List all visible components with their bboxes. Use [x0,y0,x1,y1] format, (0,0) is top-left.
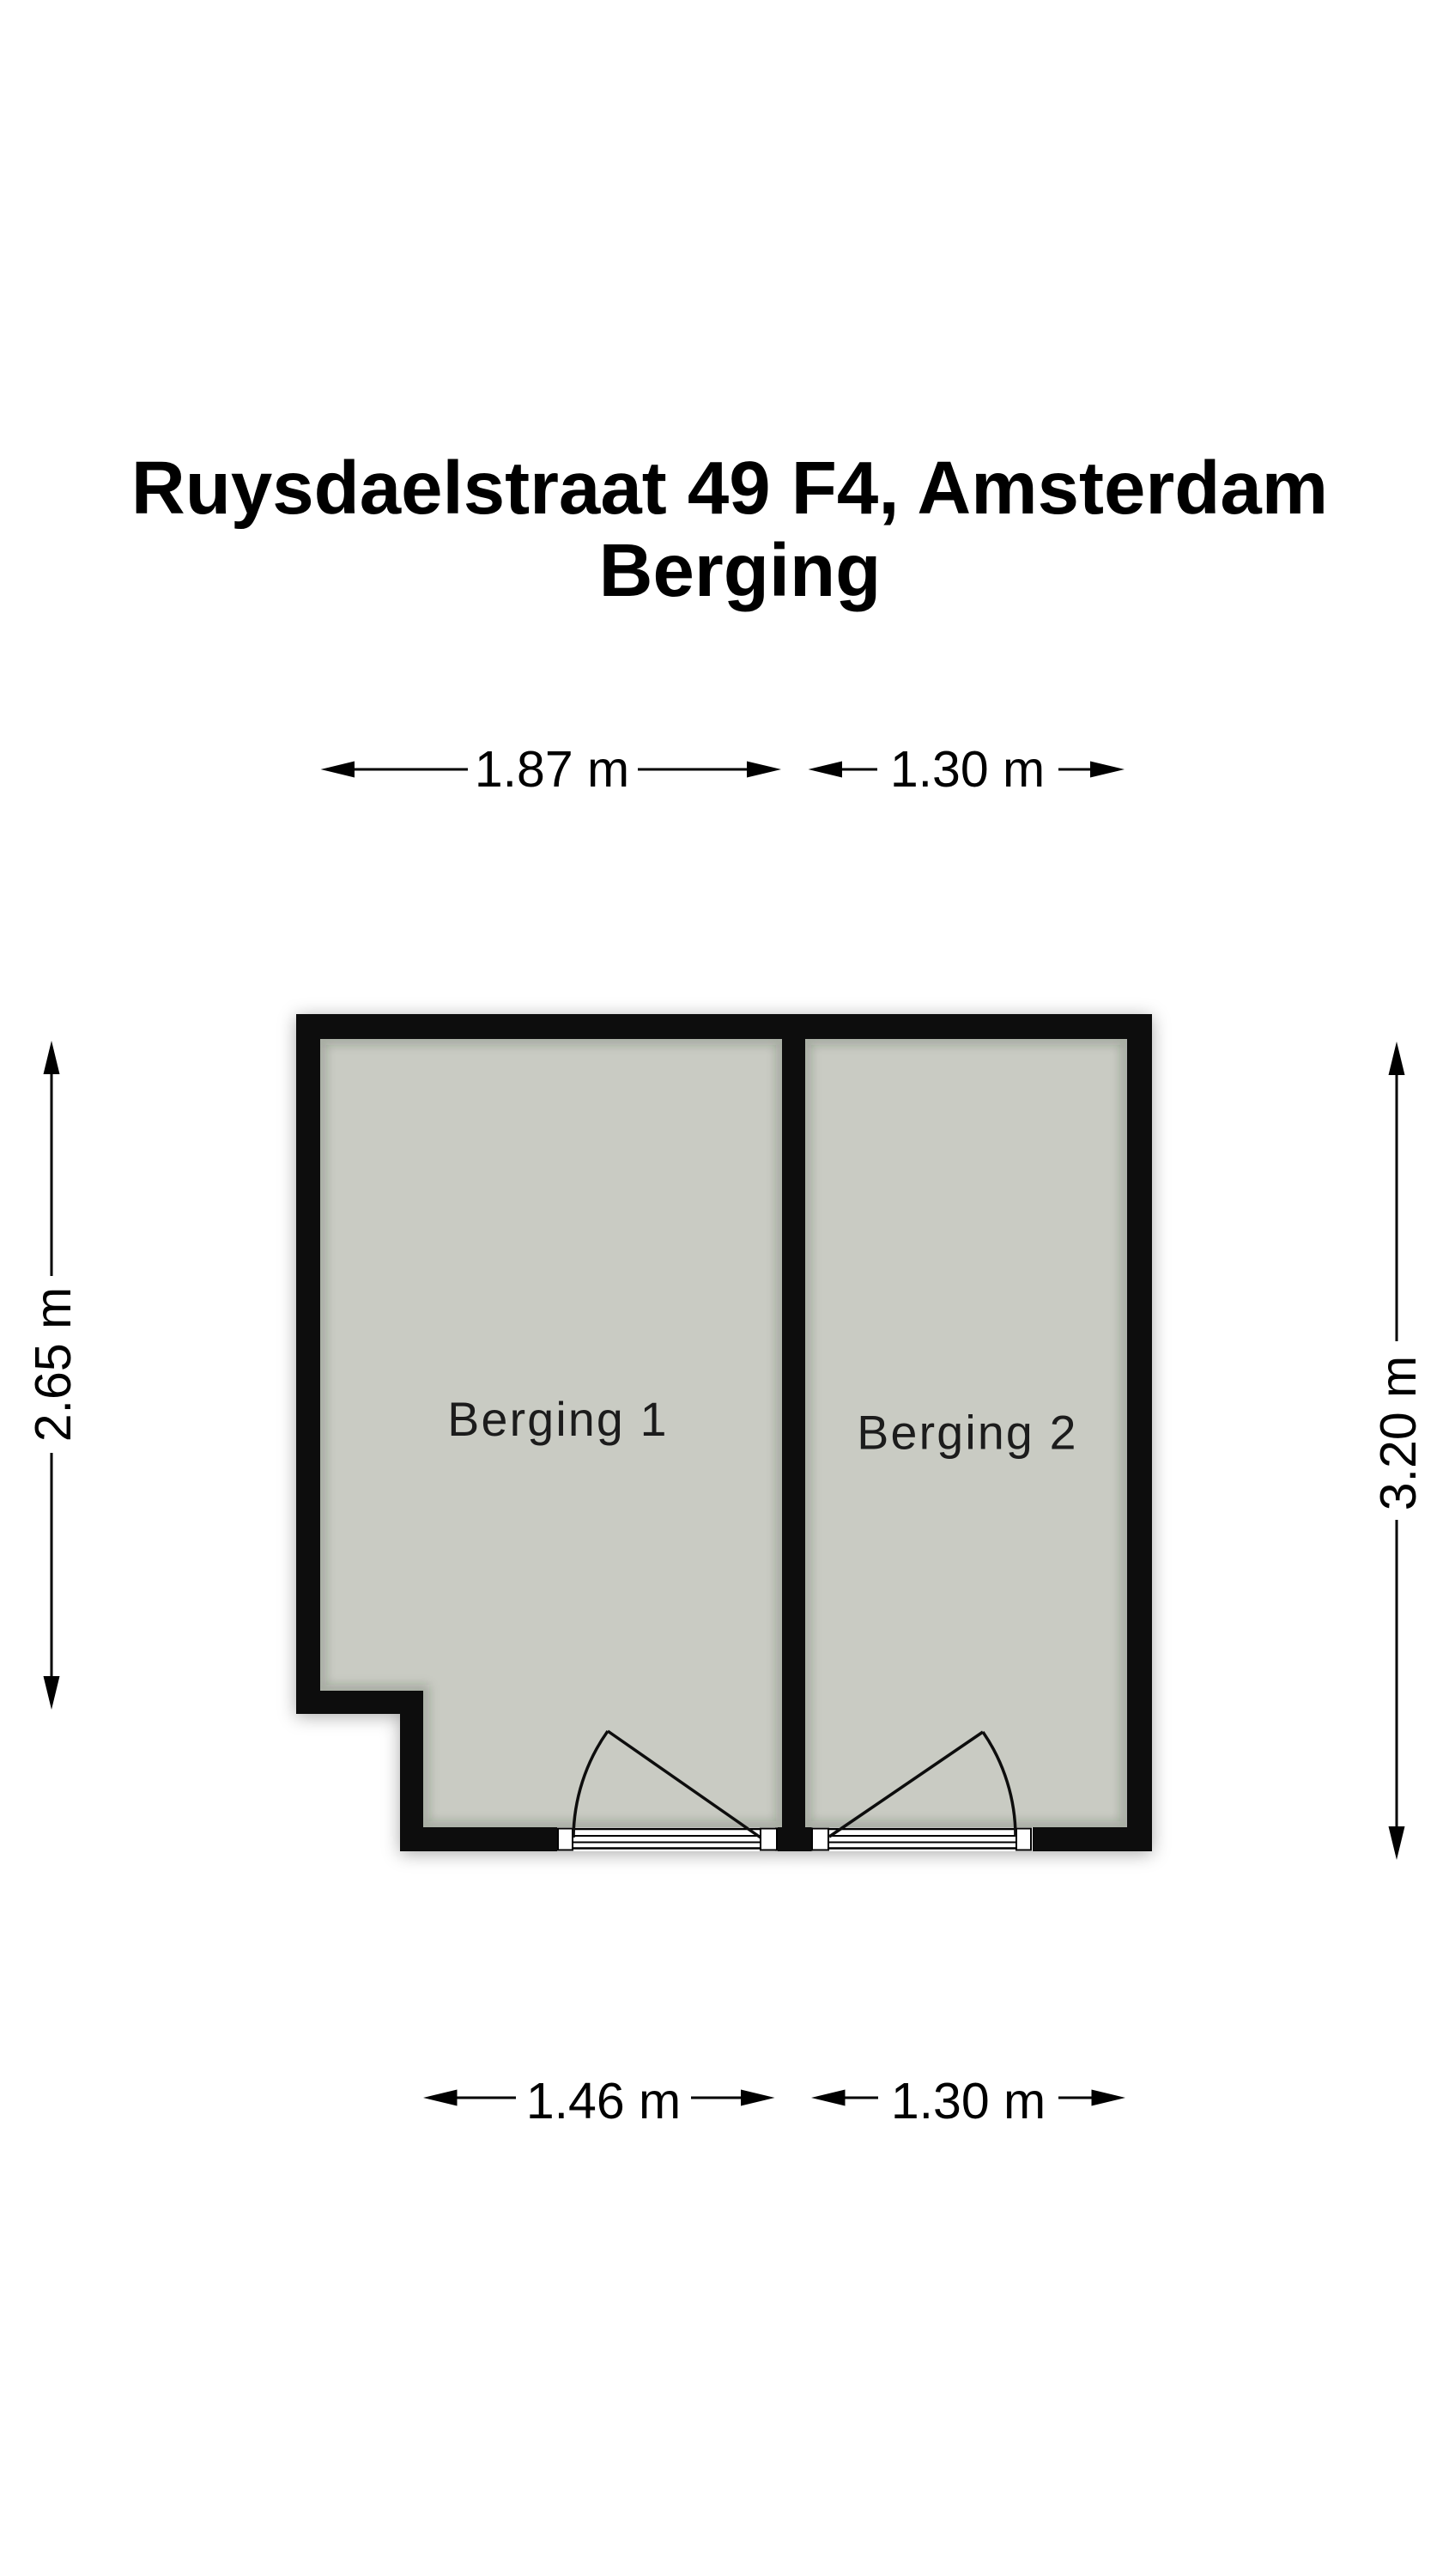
svg-text:1.46 m: 1.46 m [526,2073,681,2129]
svg-text:Berging 1: Berging 1 [447,1393,668,1446]
svg-text:Berging 2: Berging 2 [857,1406,1077,1460]
svg-text:Ruysdaelstraat 49 F4, Amsterda: Ruysdaelstraat 49 F4, Amsterdam [131,447,1328,530]
svg-text:1.87 m: 1.87 m [475,741,629,798]
svg-text:Berging: Berging [599,529,882,612]
svg-text:3.20 m: 3.20 m [1370,1356,1427,1510]
svg-text:1.30 m: 1.30 m [891,2073,1046,2129]
svg-text:2.65 m: 2.65 m [25,1287,82,1442]
svg-text:1.30 m: 1.30 m [890,741,1045,798]
